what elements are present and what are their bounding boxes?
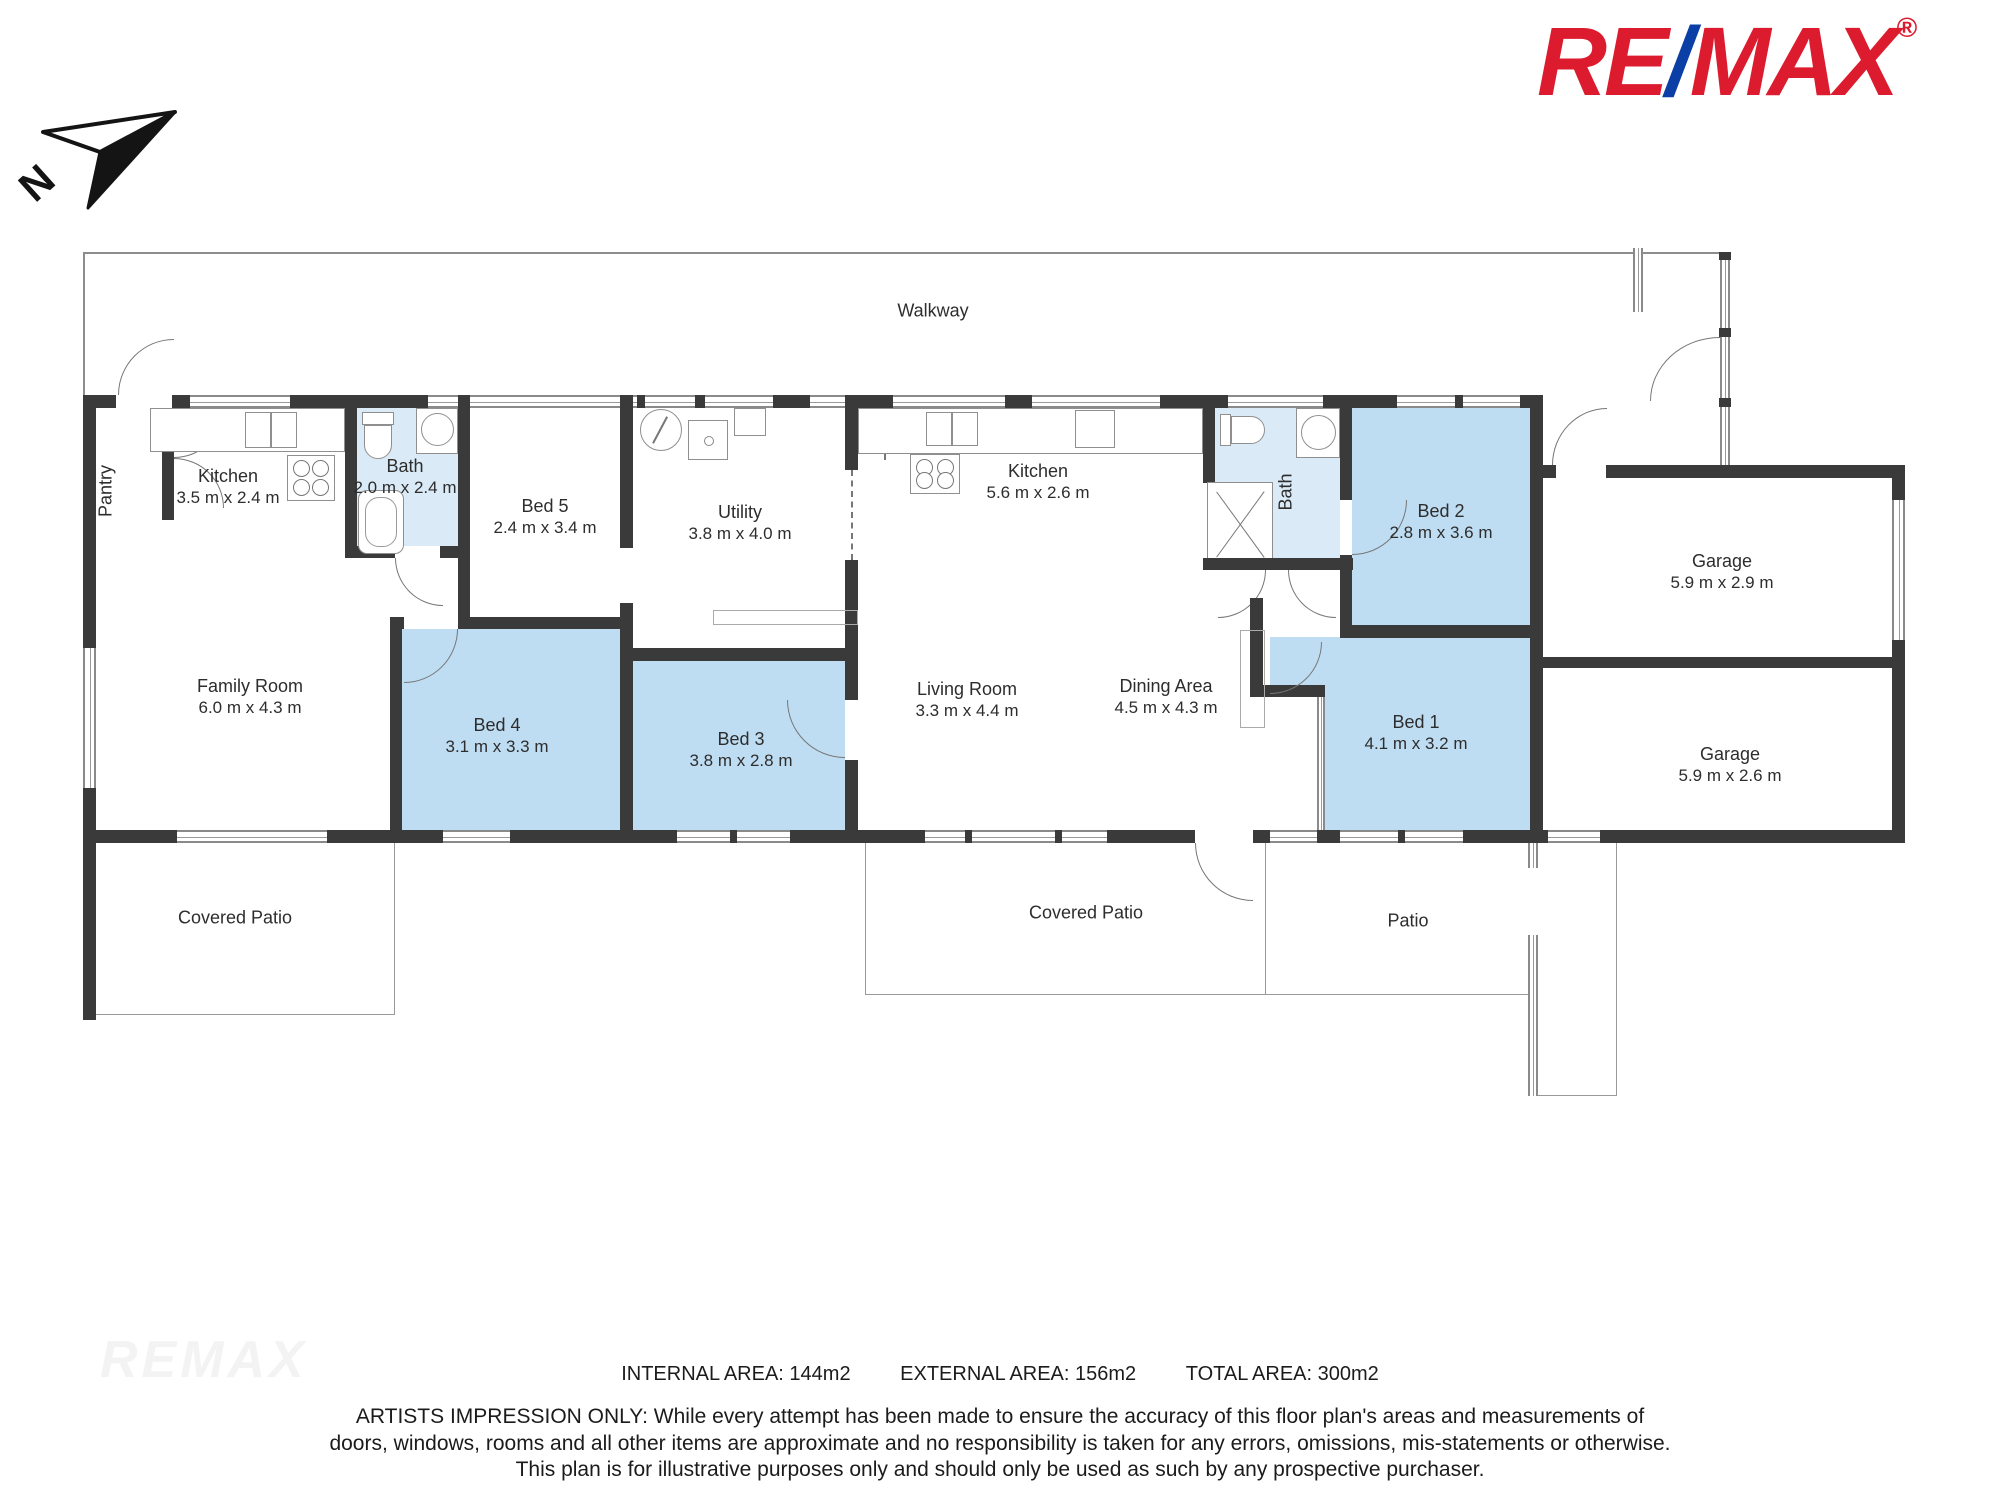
room-dimensions: 5.9 m x 2.6 m	[1679, 765, 1782, 786]
bed5-utility-wall	[620, 395, 633, 830]
plan-detail	[937, 472, 954, 489]
tick	[637, 395, 645, 408]
room-name: Kitchen	[177, 466, 280, 487]
disclaimer-line-1: ARTISTS IMPRESSION ONLY: While every att…	[0, 1404, 2000, 1431]
room-dimensions: 5.9 m x 2.9 m	[1671, 572, 1774, 593]
winv	[1892, 500, 1905, 640]
room-name: Bed 5	[494, 496, 597, 517]
room-name: Living Room	[916, 679, 1019, 700]
garage-divider-wall	[1543, 657, 1892, 668]
patio-deck-strip	[1528, 935, 1538, 1096]
fix	[271, 412, 297, 448]
room-label-bed-2: Bed 22.8 m x 3.6 m	[1390, 501, 1493, 543]
internal-area: INTERNAL AREA: 144m2	[621, 1363, 850, 1385]
room-name: Pantry	[96, 465, 117, 517]
kitchen2-sink	[926, 412, 952, 446]
bath1-door-arc	[395, 558, 443, 606]
tick	[1719, 328, 1731, 337]
north-letter: N	[10, 155, 64, 210]
room-label-bath: Bath2.0 m x 2.4 m	[354, 456, 457, 498]
tick	[1719, 398, 1731, 407]
gap	[116, 395, 172, 408]
room-name: Bath	[1276, 473, 1297, 510]
bath2-basin	[1301, 415, 1336, 450]
room-name: Bed 1	[1365, 712, 1468, 733]
utility-kitchen2-wall-top	[845, 395, 858, 470]
north-arrow-icon: N	[10, 80, 230, 240]
bath2-bottom-wall	[1203, 558, 1353, 570]
room-dimensions: 3.5 m x 2.4 m	[177, 487, 280, 508]
gap	[1195, 830, 1253, 843]
kitchen2-fridge	[1075, 410, 1115, 448]
logo-re: RE	[1537, 7, 1666, 116]
utility-sink	[734, 408, 766, 436]
gap	[620, 548, 633, 603]
room-name: Family Room	[197, 676, 303, 697]
win	[1548, 830, 1600, 843]
bed1-closet	[1317, 697, 1325, 830]
bath2-toilet-bowl	[1231, 416, 1265, 444]
kitchen2-counter	[858, 408, 1203, 454]
room-name: Bed 4	[446, 715, 549, 736]
room-label-utility: Utility3.8 m x 4.0 m	[689, 502, 792, 544]
bath1-toilet-tank	[362, 412, 394, 425]
room-label-bed-5: Bed 52.4 m x 3.4 m	[494, 496, 597, 538]
kitchen1-stove	[287, 455, 335, 501]
area-summary: INTERNAL AREA: 144m2 EXTERNAL AREA: 156m…	[0, 1363, 2000, 1386]
pantry-walkway-door-arc	[118, 339, 174, 395]
kitchen2-dashed-line	[851, 470, 853, 560]
win	[1270, 830, 1317, 843]
room-dimensions: 6.0 m x 4.3 m	[197, 697, 303, 718]
room-label-bed-4: Bed 43.1 m x 3.3 m	[446, 715, 549, 757]
bed1-hall-white	[1270, 697, 1317, 830]
external-area: EXTERNAL AREA: 156m2	[900, 1363, 1136, 1385]
room-dimensions: 3.1 m x 3.3 m	[446, 736, 549, 757]
room-name: Kitchen	[987, 461, 1090, 482]
room-label-family-room: Family Room6.0 m x 4.3 m	[197, 676, 303, 718]
hot-water-system	[640, 409, 682, 451]
room-label-covered-patio: Covered Patio	[178, 908, 292, 929]
win	[1228, 395, 1323, 408]
bed4-left-wall	[390, 617, 402, 830]
gap	[1340, 500, 1352, 555]
gap	[845, 700, 858, 760]
room-name: Dining Area	[1115, 676, 1218, 697]
room-label-kitchen: Kitchen5.6 m x 2.6 m	[987, 461, 1090, 503]
plan-detail	[312, 479, 329, 496]
walkway-glass-wall	[1720, 252, 1730, 465]
win	[177, 830, 327, 843]
room-label-walkway: Walkway	[897, 301, 968, 322]
room-dimensions: 5.6 m x 2.6 m	[987, 482, 1090, 503]
disclaimer-line-2: doors, windows, rooms and all other item…	[0, 1431, 2000, 1458]
win	[190, 395, 290, 408]
room-label-bath: Bath	[1276, 473, 1297, 510]
room-label-bed-3: Bed 33.8 m x 2.8 m	[690, 729, 793, 771]
tick	[1398, 830, 1405, 843]
room-label-patio: Patio	[1387, 911, 1428, 932]
arc	[1288, 570, 1336, 618]
room-dimensions: 2.4 m x 3.4 m	[494, 517, 597, 538]
logo-registered-mark: ®	[1896, 12, 1917, 43]
plan-detail	[293, 460, 310, 477]
room-label-dining-area: Dining Area4.5 m x 4.3 m	[1115, 676, 1218, 718]
kitchen1-sink	[245, 412, 271, 448]
bulkhead	[713, 610, 858, 625]
utility-washer	[688, 420, 728, 460]
room-dimensions: 4.5 m x 4.3 m	[1115, 697, 1218, 718]
bed2-bottom-wall	[1340, 625, 1543, 638]
logo-max: MAX	[1690, 7, 1897, 116]
room-name: Garage	[1679, 744, 1782, 765]
tick	[1055, 830, 1062, 843]
gap	[404, 617, 458, 629]
room-name: Covered Patio	[178, 908, 292, 929]
tick	[1719, 252, 1731, 260]
room-name: Covered Patio	[1029, 903, 1143, 924]
bed2-garage-wall	[1530, 395, 1543, 843]
room-label-living-room: Living Room3.3 m x 4.4 m	[916, 679, 1019, 721]
fix	[952, 412, 978, 446]
bath1-toilet-bowl	[364, 425, 392, 459]
tick	[965, 830, 972, 843]
tick	[1455, 395, 1463, 408]
walkway-door-arc	[1650, 337, 1720, 401]
win	[443, 830, 510, 843]
room-name: Walkway	[897, 301, 968, 322]
remax-logo: RE/MAX®	[1537, 6, 1917, 118]
room-name: Garage	[1671, 551, 1774, 572]
shower	[1207, 482, 1273, 566]
room-label-garage: Garage5.9 m x 2.6 m	[1679, 744, 1782, 786]
room-label-kitchen: Kitchen3.5 m x 2.4 m	[177, 466, 280, 508]
garage-entry-door-arc	[1552, 408, 1607, 465]
total-area: TOTAL AREA: 300m2	[1186, 1363, 1379, 1385]
disclaimer: ARTISTS IMPRESSION ONLY: While every att…	[0, 1404, 2000, 1484]
bath2-left-wall	[1203, 408, 1215, 483]
room-label-bed-1: Bed 14.1 m x 3.2 m	[1365, 712, 1468, 754]
win	[893, 395, 1005, 408]
dining-cupboard	[1240, 630, 1265, 728]
room-name: Bed 3	[690, 729, 793, 750]
room-dimensions: 3.3 m x 4.4 m	[916, 700, 1019, 721]
kitchen2-stove	[910, 454, 960, 494]
covered-patio-left	[96, 843, 395, 1015]
plan-detail	[312, 460, 329, 477]
room-name: Bath	[354, 456, 457, 477]
room-label-garage: Garage5.9 m x 2.9 m	[1671, 551, 1774, 593]
gap	[1556, 465, 1606, 478]
room-dimensions: 2.0 m x 2.4 m	[354, 477, 457, 498]
walkway-left-line	[83, 252, 85, 395]
bath1-basin	[421, 413, 454, 446]
plan-detail	[293, 479, 310, 496]
bed3-living-wall	[845, 560, 858, 830]
bath1-bed5-wall	[458, 395, 470, 617]
room-label-pantry: Pantry	[96, 465, 117, 517]
disclaimer-line-3: This plan is for illustrative purposes o…	[0, 1457, 2000, 1484]
room-label-covered-patio: Covered Patio	[1029, 903, 1143, 924]
bath1-tub	[358, 490, 404, 554]
win	[925, 830, 1107, 843]
thin	[1266, 994, 1535, 995]
winv	[1528, 843, 1538, 868]
room-name: Bed 2	[1390, 501, 1493, 522]
walkway-roof-line	[83, 252, 1728, 254]
room-dimensions: 2.8 m x 3.6 m	[1390, 522, 1493, 543]
patio-right-edge	[1266, 843, 1617, 1096]
room-dimensions: 3.8 m x 4.0 m	[689, 523, 792, 544]
winv	[83, 648, 96, 788]
bath2-toilet-tank	[1220, 414, 1231, 446]
floorplan-page: N RE/MAX®	[0, 0, 2000, 1500]
room-dimensions: 4.1 m x 3.2 m	[1365, 733, 1468, 754]
room-name: Utility	[689, 502, 792, 523]
thin	[1538, 1095, 1617, 1096]
tick	[730, 830, 737, 843]
room-dimensions: 3.8 m x 2.8 m	[690, 750, 793, 771]
win	[1032, 395, 1160, 408]
logo-slash: /	[1666, 7, 1690, 116]
plan-detail	[916, 472, 933, 489]
bed3-top-wall	[620, 648, 858, 661]
room-name: Patio	[1387, 911, 1428, 932]
walkway-window-bar	[1633, 248, 1643, 312]
win	[705, 395, 773, 408]
